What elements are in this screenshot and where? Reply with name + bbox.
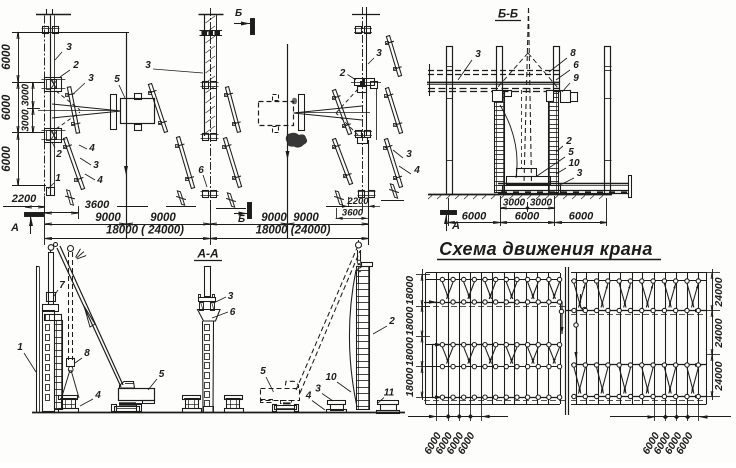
svg-text:6: 6 <box>573 60 579 71</box>
svg-text:4: 4 <box>96 175 103 186</box>
svg-text:3: 3 <box>93 160 99 171</box>
svg-text:6000: 6000 <box>462 211 487 223</box>
svg-text:9000: 9000 <box>261 212 287 224</box>
svg-text:2: 2 <box>388 316 395 327</box>
svg-text:3: 3 <box>577 168 583 179</box>
svg-text:3: 3 <box>315 384 321 395</box>
svg-text:24000: 24000 <box>713 361 725 391</box>
svg-text:6000: 6000 <box>1 146 13 172</box>
svg-text:2200: 2200 <box>11 193 37 205</box>
svg-text:8: 8 <box>570 48 576 59</box>
svg-text:3000: 3000 <box>21 83 32 106</box>
svg-text:8: 8 <box>84 348 90 359</box>
svg-text:А-А: А-А <box>196 247 218 261</box>
svg-text:Б: Б <box>238 214 245 225</box>
svg-text:18000: 18000 <box>404 276 416 305</box>
svg-text:7: 7 <box>59 280 65 291</box>
svg-text:18000: 18000 <box>404 306 416 335</box>
svg-text:6000: 6000 <box>515 211 540 223</box>
svg-text:3000: 3000 <box>503 198 526 209</box>
svg-text:5: 5 <box>159 369 165 380</box>
svg-text:9000: 9000 <box>95 212 121 224</box>
svg-text:24000: 24000 <box>713 277 725 307</box>
svg-text:3: 3 <box>376 48 382 59</box>
svg-text:18000: 18000 <box>404 367 416 396</box>
svg-text:2: 2 <box>565 136 572 147</box>
svg-text:2: 2 <box>72 60 79 71</box>
svg-text:3: 3 <box>475 49 481 60</box>
svg-text:5: 5 <box>114 74 120 85</box>
svg-text:18000: 18000 <box>404 337 416 366</box>
svg-text:3: 3 <box>66 42 72 53</box>
svg-text:4: 4 <box>305 391 312 402</box>
svg-text:6000: 6000 <box>1 44 13 70</box>
svg-text:Схема движения крана: Схема движения крана <box>439 239 653 259</box>
svg-text:18000 ( 24000): 18000 ( 24000) <box>106 225 184 237</box>
svg-text:6000: 6000 <box>569 211 594 223</box>
svg-text:4: 4 <box>88 143 95 154</box>
svg-text:6: 6 <box>230 307 236 318</box>
svg-text:4: 4 <box>413 165 420 176</box>
svg-text:2200: 2200 <box>346 196 369 207</box>
svg-text:5: 5 <box>568 147 574 158</box>
svg-text:24000: 24000 <box>713 318 725 348</box>
svg-text:6: 6 <box>198 165 204 176</box>
svg-text:5: 5 <box>260 366 266 377</box>
svg-text:3: 3 <box>228 291 234 302</box>
svg-text:4: 4 <box>94 390 101 401</box>
svg-text:9: 9 <box>573 73 579 84</box>
svg-text:9000: 9000 <box>150 212 176 224</box>
svg-text:11: 11 <box>384 388 395 399</box>
svg-text:1: 1 <box>17 342 23 353</box>
svg-text:Б-Б: Б-Б <box>498 9 518 21</box>
svg-text:3000: 3000 <box>21 109 32 132</box>
svg-text:3: 3 <box>145 60 151 71</box>
svg-text:6000: 6000 <box>1 94 13 120</box>
svg-text:1: 1 <box>55 173 61 184</box>
svg-text:3: 3 <box>88 73 94 84</box>
svg-text:А: А <box>10 222 19 234</box>
svg-text:2: 2 <box>339 68 346 79</box>
svg-text:3600: 3600 <box>85 199 110 211</box>
svg-text:3000: 3000 <box>530 198 553 209</box>
svg-text:9000: 9000 <box>293 212 319 224</box>
svg-text:18000 (24000): 18000 (24000) <box>256 225 331 237</box>
svg-text:Б: Б <box>235 8 242 19</box>
svg-text:3: 3 <box>406 149 412 160</box>
svg-text:3600: 3600 <box>342 208 364 219</box>
svg-text:2: 2 <box>55 149 62 160</box>
svg-text:10: 10 <box>325 372 337 383</box>
